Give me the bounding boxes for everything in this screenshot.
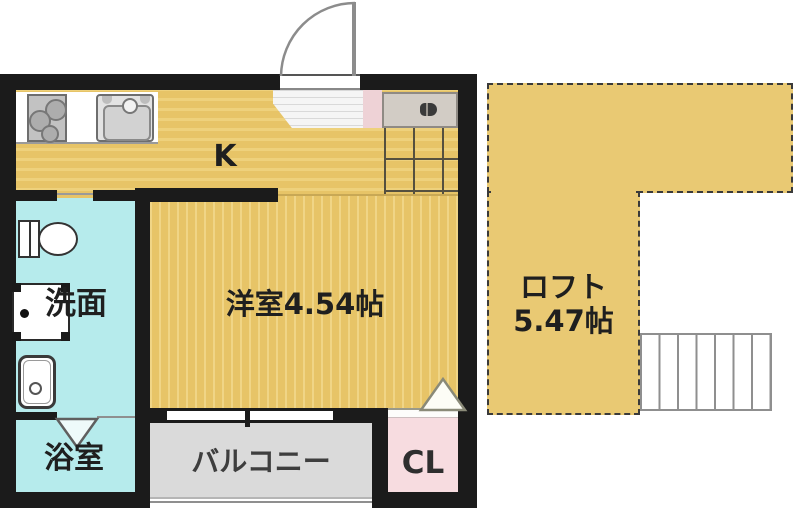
toilet-bowl-icon (38, 222, 78, 256)
entry-pink-strip (363, 90, 382, 128)
entry-door-swing-arc (278, 0, 358, 78)
top-wall-left (0, 74, 280, 90)
washroom-label: 洗面 (30, 288, 122, 321)
floor-transition-line (278, 194, 460, 196)
balcony-window (167, 408, 333, 423)
balcony-label: バルコニー (150, 447, 372, 476)
kitchen-label: K (205, 141, 245, 173)
balcony-closet-divider-wall (372, 410, 388, 508)
bathroom-top-wall (0, 412, 57, 420)
entry-step-grid (384, 128, 458, 194)
washroom-door-track (57, 193, 93, 195)
loft-seam-patch (491, 188, 636, 197)
washroom-top-wall-a (16, 190, 57, 201)
shoes-icon-split (426, 103, 428, 116)
bathroom-label: 浴室 (26, 443, 122, 475)
washroom-right-wall (135, 188, 150, 508)
main-room-label: 洋室4.54帖 (150, 289, 460, 319)
shoes-icon (420, 103, 437, 116)
loft-label-line2: 5.47帖 (487, 306, 640, 336)
window-wall-left (150, 408, 167, 423)
floorplan: K 洋室4.54帖 ロフト 5.47帖 洗面 浴室 バルコニー CL (0, 0, 800, 513)
loft-area-upper (487, 83, 793, 193)
toilet-tank (18, 220, 40, 258)
kitchen-room-divider-wall (137, 188, 278, 202)
loft-ladder (640, 333, 772, 411)
window-center-mullion (245, 408, 250, 427)
sink-icon (96, 94, 154, 142)
washroom-top-wall-b (93, 190, 137, 201)
loft-label-line1: ロフト (487, 272, 640, 302)
closet-door-triangle-icon (420, 378, 466, 411)
balcony-railing (143, 497, 378, 503)
stove-icon (27, 94, 67, 142)
window-wall-right (333, 408, 388, 423)
washing-machine-icon (18, 355, 56, 409)
bottom-wall-left (0, 492, 150, 508)
right-wall (458, 74, 477, 508)
bathroom-door-track (97, 416, 135, 418)
shoe-cabinet (382, 92, 458, 128)
closet-label: CL (388, 447, 458, 480)
